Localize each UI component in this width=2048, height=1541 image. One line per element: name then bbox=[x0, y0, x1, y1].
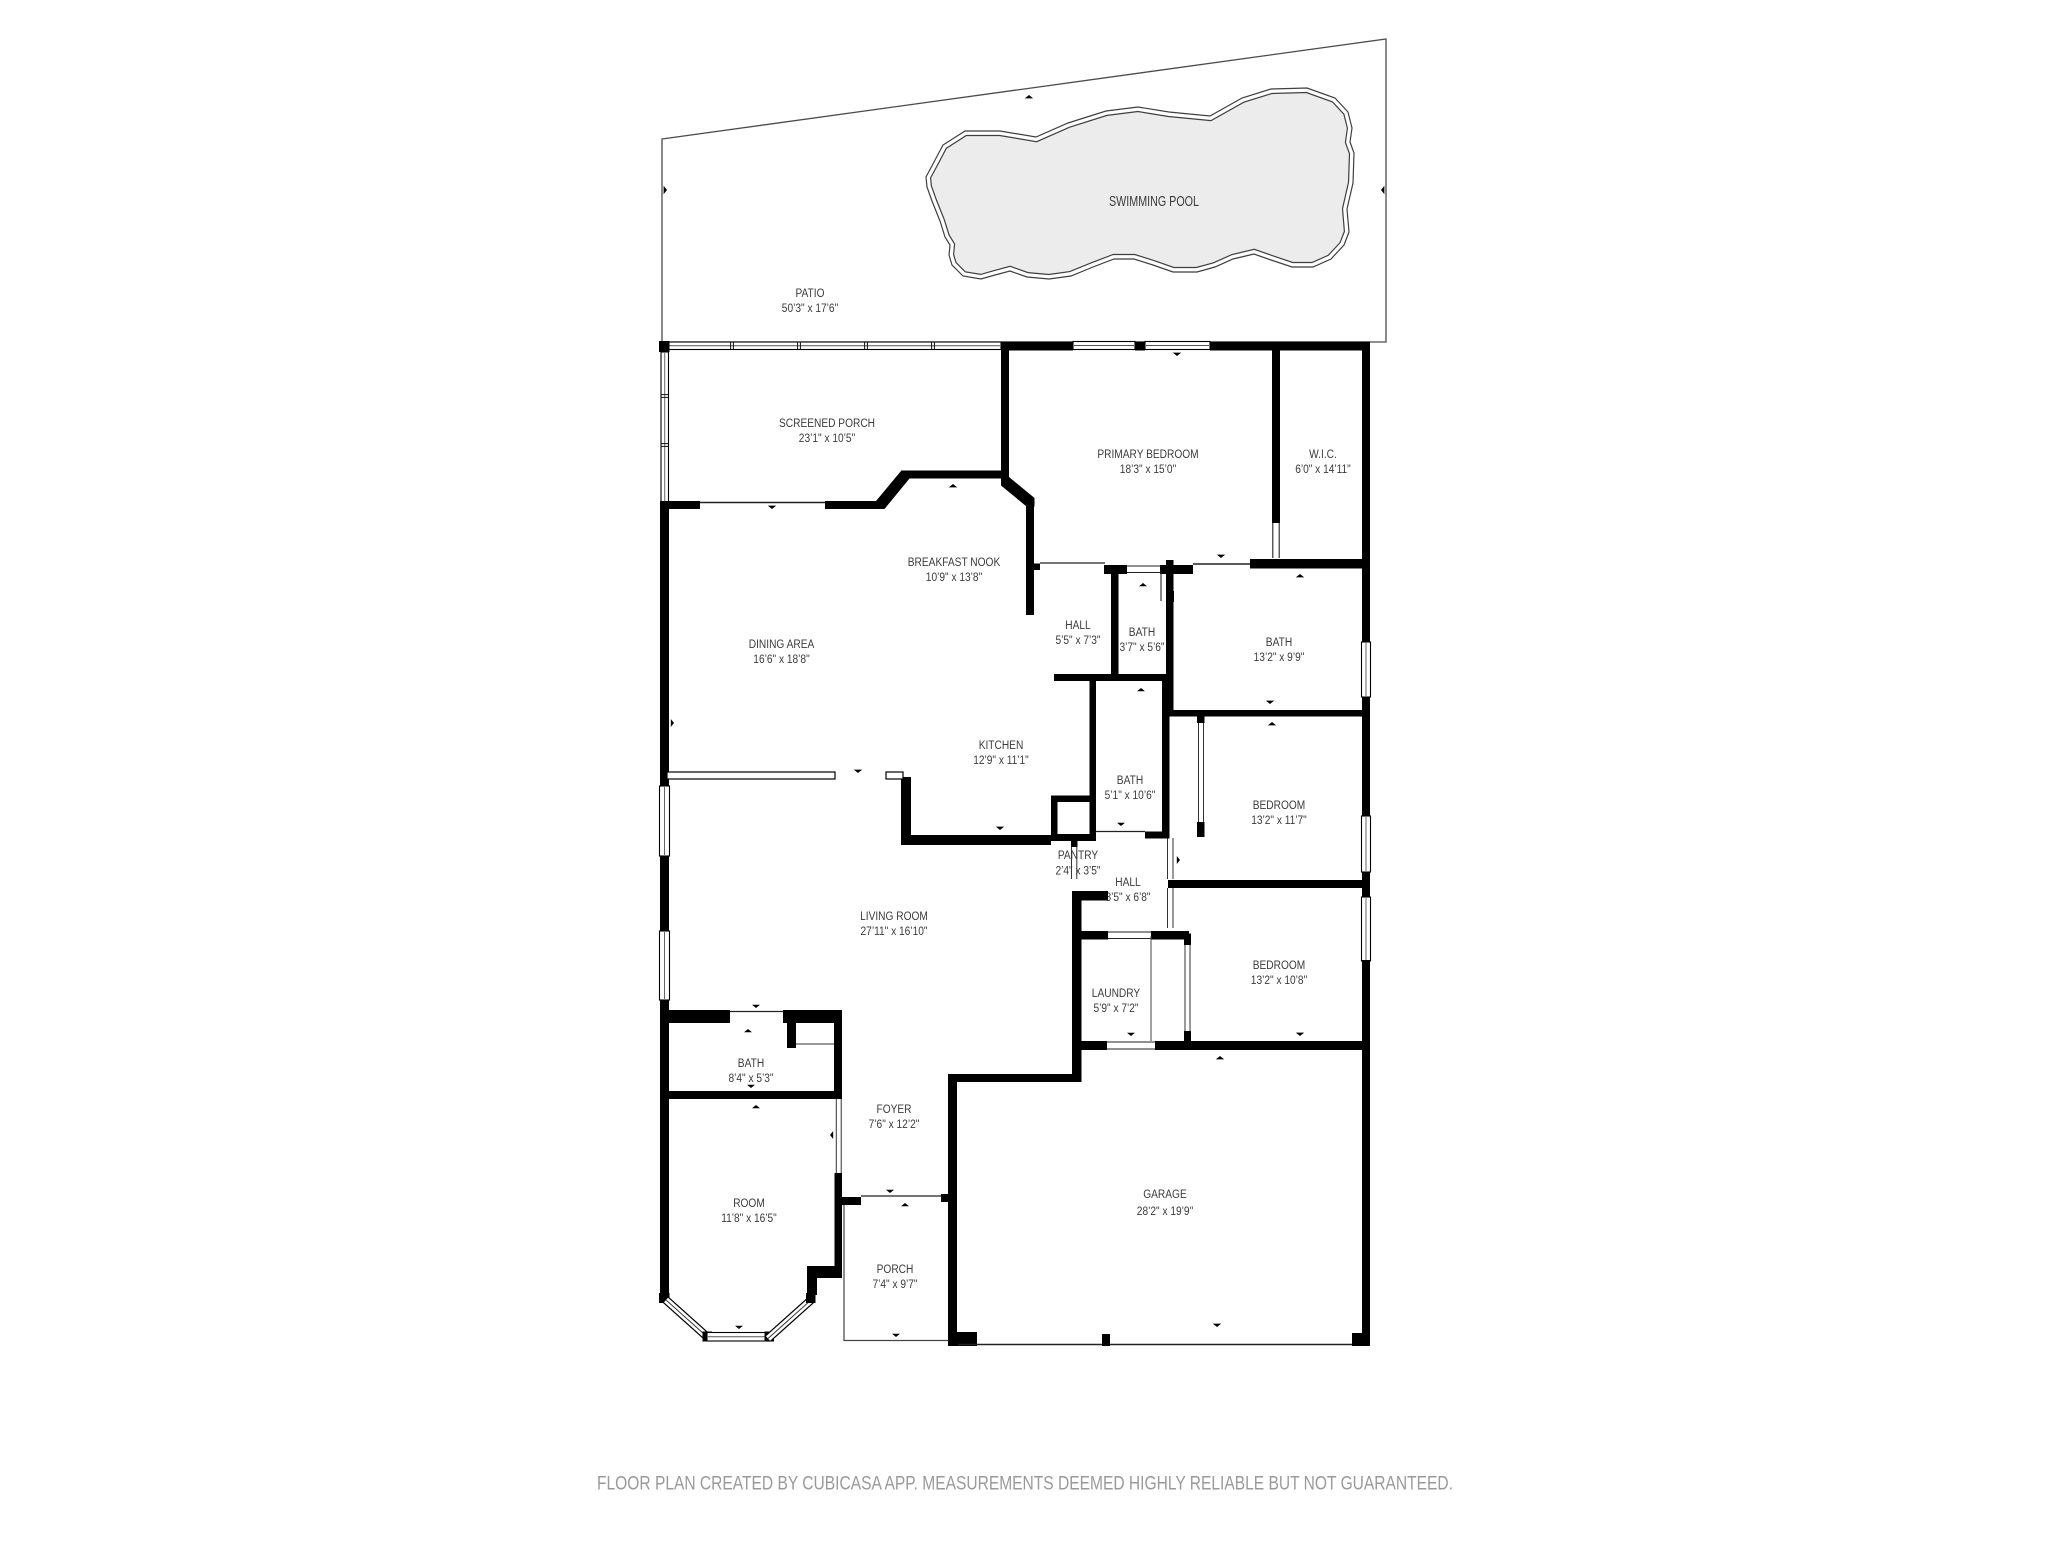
svg-text:ROOM: ROOM bbox=[733, 1196, 765, 1210]
svg-text:13’2" x 9’9": 13’2" x 9’9" bbox=[1254, 650, 1305, 664]
svg-text:PANTRY: PANTRY bbox=[1058, 848, 1098, 862]
svg-text:27’11" x 16’10": 27’11" x 16’10" bbox=[861, 924, 928, 938]
svg-text:13’2" x 10’8": 13’2" x 10’8" bbox=[1251, 973, 1307, 987]
svg-text:6’0" x 14’11": 6’0" x 14’11" bbox=[1295, 462, 1351, 476]
svg-text:PRIMARY BEDROOM: PRIMARY BEDROOM bbox=[1097, 447, 1198, 461]
svg-text:8’4" x 5’3": 8’4" x 5’3" bbox=[728, 1071, 773, 1085]
svg-text:BATH: BATH bbox=[1266, 635, 1292, 649]
svg-text:11’8" x 16’5": 11’8" x 16’5" bbox=[721, 1211, 777, 1225]
svg-text:BATH: BATH bbox=[1129, 625, 1155, 639]
svg-text:7’6" x 12’2": 7’6" x 12’2" bbox=[869, 1117, 920, 1131]
svg-text:LIVING ROOM: LIVING ROOM bbox=[860, 909, 928, 923]
svg-text:18’3" x 15’0": 18’3" x 15’0" bbox=[1120, 462, 1176, 476]
svg-text:GARAGE: GARAGE bbox=[1143, 1187, 1187, 1201]
svg-text:HALL: HALL bbox=[1115, 875, 1140, 889]
svg-text:LAUNDRY: LAUNDRY bbox=[1092, 986, 1140, 1000]
svg-text:BEDROOM: BEDROOM bbox=[1253, 958, 1306, 972]
svg-text:16’6" x 18’8": 16’6" x 18’8" bbox=[753, 652, 809, 666]
svg-text:5’5" x 7’3": 5’5" x 7’3" bbox=[1055, 633, 1100, 647]
svg-text:50’3" x 17’6": 50’3" x 17’6" bbox=[782, 301, 838, 315]
svg-text:3’7" x 5’6": 3’7" x 5’6" bbox=[1119, 640, 1164, 654]
svg-text:FOYER: FOYER bbox=[877, 1102, 912, 1116]
svg-text:DINING AREA: DINING AREA bbox=[749, 637, 815, 651]
svg-text:FLOOR PLAN CREATED BY CUBICASA: FLOOR PLAN CREATED BY CUBICASA APP. MEAS… bbox=[597, 1473, 1453, 1495]
svg-text:SCREENED PORCH: SCREENED PORCH bbox=[779, 416, 875, 430]
svg-text:HALL: HALL bbox=[1065, 618, 1090, 632]
svg-text:10’9" x 13’8": 10’9" x 13’8" bbox=[926, 570, 982, 584]
svg-text:2’4" x 3’5": 2’4" x 3’5" bbox=[1055, 864, 1100, 878]
svg-text:5’9" x 7’2": 5’9" x 7’2" bbox=[1093, 1001, 1138, 1015]
svg-text:BREAKFAST NOOK: BREAKFAST NOOK bbox=[908, 555, 1001, 569]
svg-text:BEDROOM: BEDROOM bbox=[1253, 798, 1306, 812]
svg-text:KITCHEN: KITCHEN bbox=[979, 738, 1024, 752]
svg-text:SWIMMING POOL: SWIMMING POOL bbox=[1109, 193, 1199, 210]
svg-text:7’4" x 9’7": 7’4" x 9’7" bbox=[872, 1277, 917, 1291]
svg-text:12’9" x 11’1": 12’9" x 11’1" bbox=[973, 753, 1029, 767]
svg-text:BATH: BATH bbox=[1117, 773, 1143, 787]
svg-text:3’5" x 6’8": 3’5" x 6’8" bbox=[1105, 890, 1150, 904]
svg-text:PORCH: PORCH bbox=[877, 1262, 914, 1276]
svg-text:5’1" x 10’6": 5’1" x 10’6" bbox=[1105, 788, 1156, 802]
svg-text:BATH: BATH bbox=[738, 1056, 764, 1070]
svg-text:13’2" x 11’7": 13’2" x 11’7" bbox=[1251, 813, 1307, 827]
svg-text:W.I.C.: W.I.C. bbox=[1309, 447, 1337, 461]
svg-text:23’1" x 10’5": 23’1" x 10’5" bbox=[799, 431, 855, 445]
svg-text:28’2" x 19’9": 28’2" x 19’9" bbox=[1137, 1204, 1193, 1218]
svg-text:PATIO: PATIO bbox=[796, 286, 825, 300]
